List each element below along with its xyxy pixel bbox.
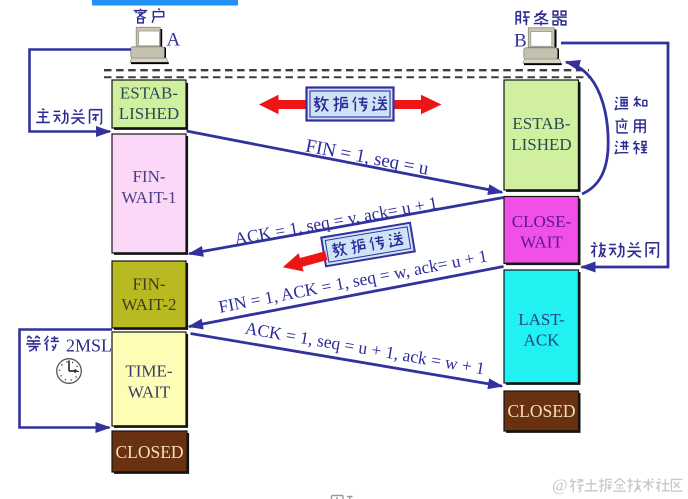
svg-text:WAIT-2: WAIT-2 bbox=[121, 295, 176, 314]
svg-text:ESTAB-: ESTAB- bbox=[120, 84, 178, 103]
svg-text:WAIT: WAIT bbox=[520, 233, 563, 252]
svg-text:FIN-: FIN- bbox=[132, 275, 165, 294]
svg-text:A: A bbox=[167, 30, 181, 51]
svg-text:WAIT-1: WAIT-1 bbox=[121, 188, 176, 207]
svg-text:CLOSED: CLOSED bbox=[115, 442, 183, 462]
svg-text:ESTAB-: ESTAB- bbox=[512, 114, 570, 133]
svg-text:ACK: ACK bbox=[524, 331, 561, 350]
svg-text:FIN-: FIN- bbox=[132, 167, 165, 186]
svg-text:TIME-: TIME- bbox=[125, 362, 173, 381]
svg-text:@: @ bbox=[552, 476, 568, 495]
svg-text:LISHED: LISHED bbox=[119, 104, 179, 123]
svg-text:WAIT: WAIT bbox=[128, 383, 171, 402]
svg-text:2MSL: 2MSL bbox=[66, 336, 112, 356]
svg-text:CLOSED: CLOSED bbox=[507, 401, 575, 421]
svg-text:LISHED: LISHED bbox=[511, 135, 571, 154]
svg-text:CLOSE-: CLOSE- bbox=[512, 212, 572, 231]
svg-text:LAST-: LAST- bbox=[518, 310, 565, 329]
